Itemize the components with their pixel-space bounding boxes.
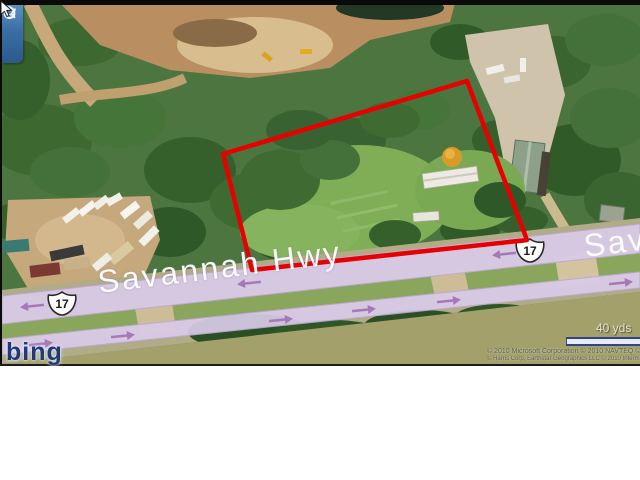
route-shield-number: 17	[523, 244, 537, 258]
attribution-line-2: © Harris Corp, Earthstar Geographics LLC…	[487, 356, 640, 362]
scale-bar	[566, 337, 640, 346]
mouse-cursor	[0, 0, 14, 18]
scale-label: 40 yds	[596, 321, 631, 335]
rotate-cw-button[interactable]	[2, 24, 23, 43]
aerial-imagery: 17 17	[0, 0, 640, 366]
route-shield-number: 17	[55, 297, 69, 311]
small-trailer	[413, 211, 440, 222]
attribution-line-1: © 2010 Microsoft Corporation © 2010 NAVT…	[487, 348, 640, 355]
highway-name-label-partial: Sav	[582, 221, 640, 265]
screen: 17 17 Savannah Hwy Sav	[0, 0, 640, 480]
orange-tree	[442, 147, 462, 167]
map-viewport[interactable]: 17 17 Savannah Hwy Sav	[0, 0, 640, 366]
bing-logo[interactable]: bing	[6, 338, 63, 366]
rotate-ccw-button[interactable]	[2, 43, 23, 62]
